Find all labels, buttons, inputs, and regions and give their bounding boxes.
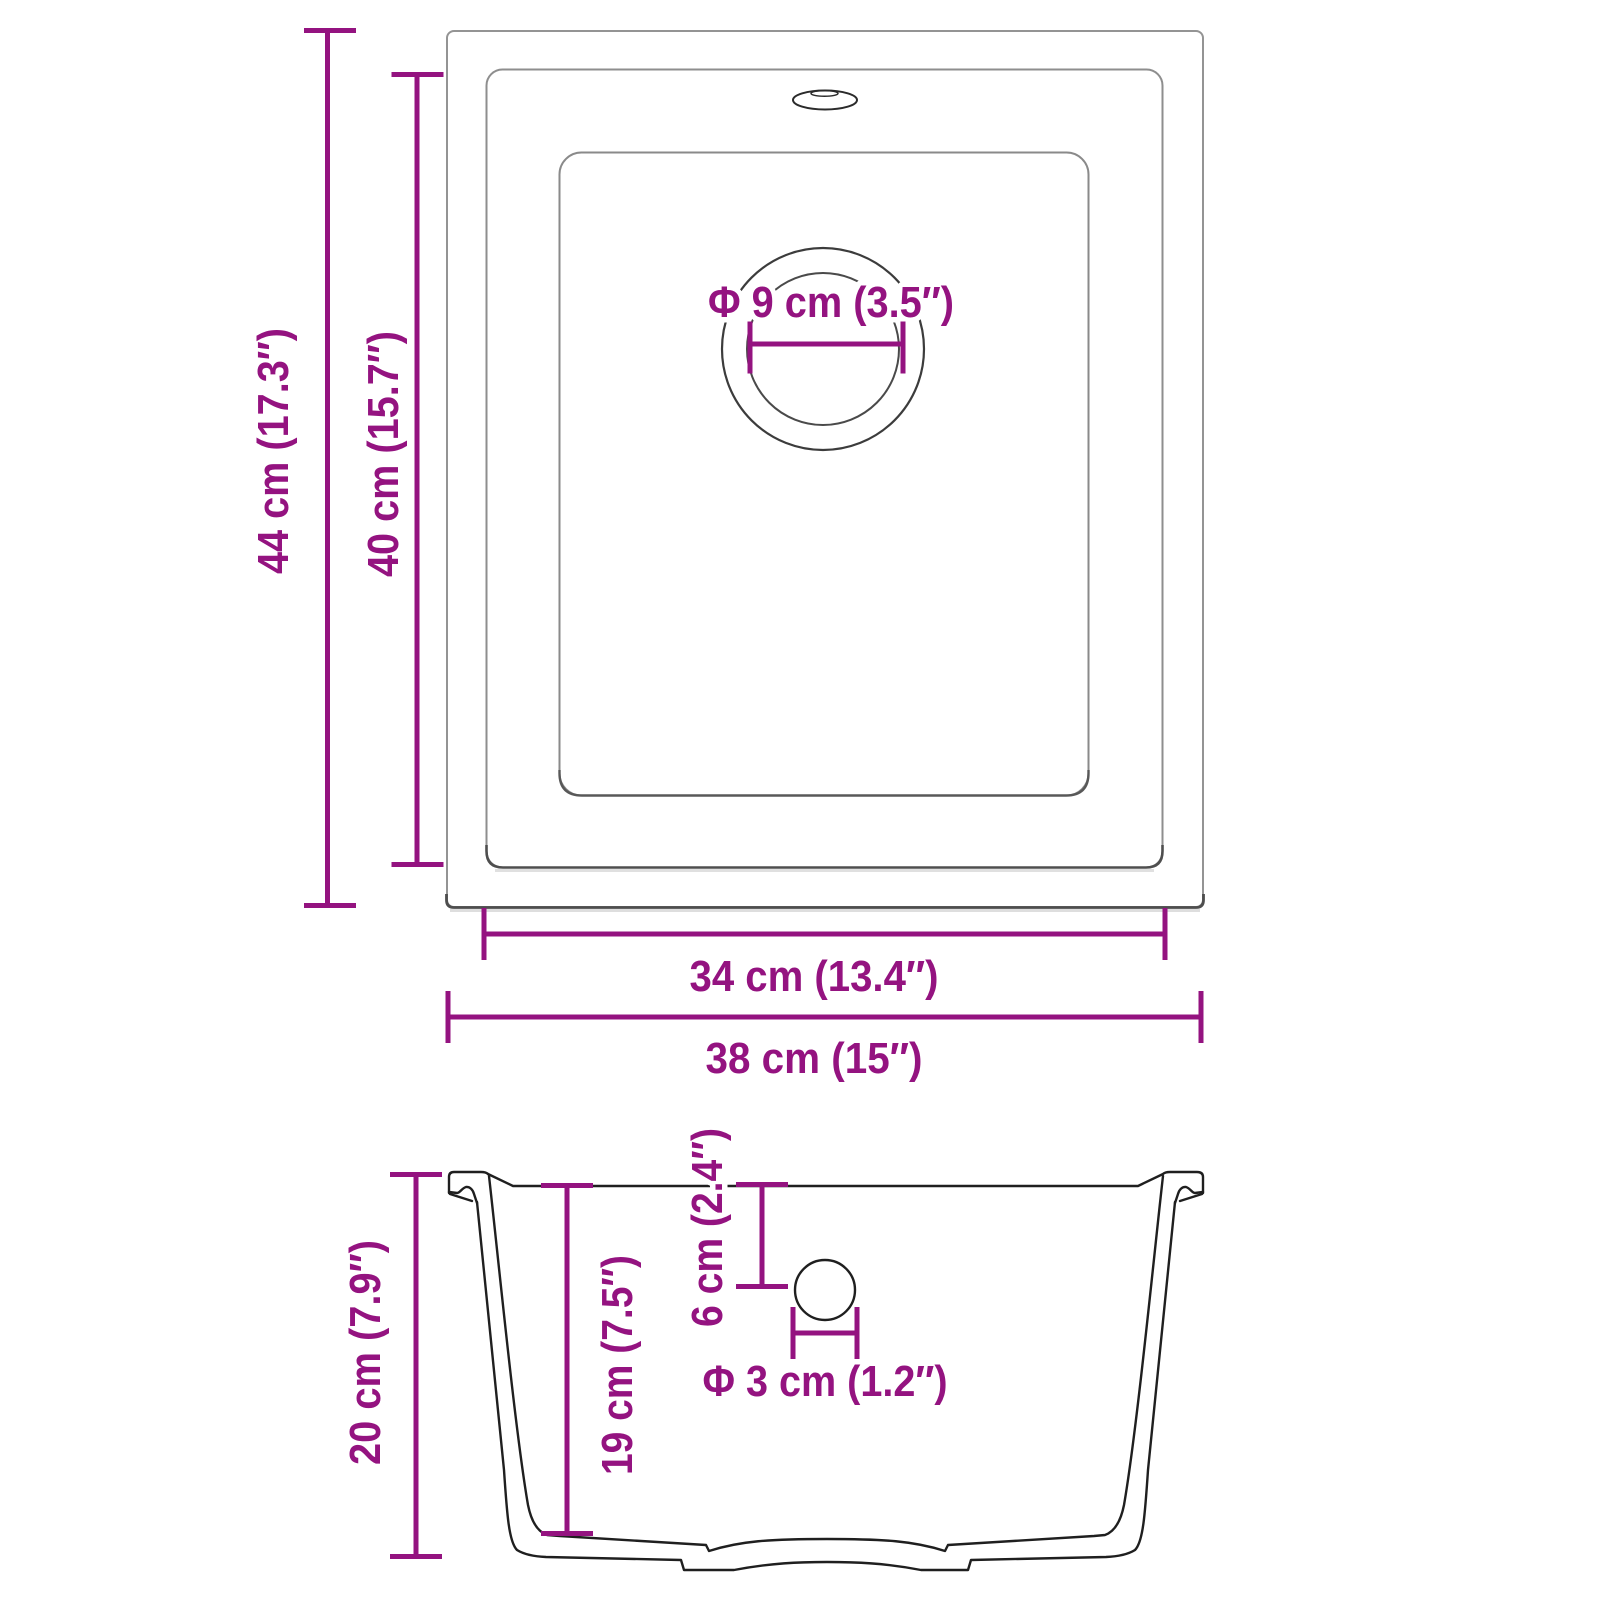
svg-text:20 cm (7.9″): 20 cm (7.9″) [341,1240,390,1465]
svg-text:34 cm (13.4″): 34 cm (13.4″) [690,952,939,1001]
svg-text:Φ 9 cm (3.5″): Φ 9 cm (3.5″) [708,278,954,327]
svg-text:40 cm (15.7″): 40 cm (15.7″) [359,331,408,577]
svg-text:19 cm (7.5″): 19 cm (7.5″) [593,1255,642,1475]
svg-text:6 cm (2.4″): 6 cm (2.4″) [683,1128,732,1327]
svg-text:Φ 3 cm (1.2″): Φ 3 cm (1.2″) [703,1357,948,1406]
svg-text:44 cm (17.3″): 44 cm (17.3″) [249,328,298,574]
svg-text:38 cm (15″): 38 cm (15″) [706,1034,923,1083]
